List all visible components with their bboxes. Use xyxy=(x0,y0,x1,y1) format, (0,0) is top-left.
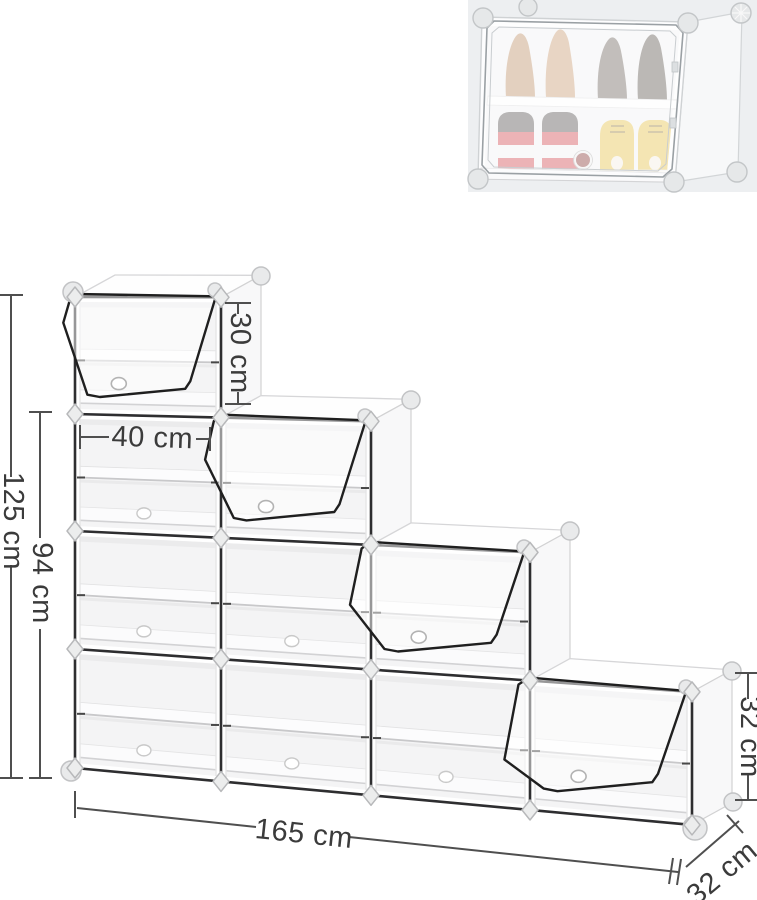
door-knob xyxy=(111,378,126,390)
knob-hole xyxy=(439,771,453,782)
knob-hole xyxy=(137,508,151,519)
knob-hole xyxy=(137,626,151,637)
corner-knob xyxy=(727,162,747,182)
corner-knob xyxy=(252,267,270,285)
knob-hole xyxy=(285,758,299,769)
corner-knob xyxy=(678,13,698,33)
cube-r4-c2 xyxy=(223,664,369,789)
inset-photo xyxy=(468,0,757,192)
door-knob xyxy=(571,770,586,782)
cube-r4-c1 xyxy=(77,654,219,776)
dimension-three-tier-height-label: 94 cm xyxy=(26,542,58,623)
door-hinge xyxy=(672,62,678,72)
open-door xyxy=(504,678,686,792)
door-hinge xyxy=(670,118,676,128)
knob-hole xyxy=(285,636,299,647)
cube-r4-c3 xyxy=(373,675,528,805)
diagram-canvas: 125 cm 94 cm 30 cm 40 cm 32 cm 165 cm 32… xyxy=(0,0,757,900)
dimension-right-cube-height: 32 cm xyxy=(734,673,757,800)
corner-knob xyxy=(473,8,493,28)
dimension-three-tier-height: 94 cm xyxy=(26,412,58,778)
corner-knob xyxy=(561,522,579,540)
corner-knob xyxy=(402,391,420,409)
dimension-total-width-label: 165 cm xyxy=(253,813,354,855)
knob-hole xyxy=(137,745,151,756)
frosted-door xyxy=(482,21,683,177)
cube-r3-c2 xyxy=(223,543,369,664)
door-knob xyxy=(411,631,426,643)
shoe-rack-figure xyxy=(61,267,742,840)
dimension-top-cube-height: 30 cm xyxy=(224,303,256,404)
corner-knob xyxy=(468,169,488,189)
cube-r3-c1 xyxy=(77,536,219,654)
corner-knob xyxy=(664,172,684,192)
corner-knob xyxy=(724,793,742,811)
dimension-total-height-label: 125 cm xyxy=(0,472,29,570)
dimension-cube-width-label: 40 cm xyxy=(111,421,194,456)
door-knob xyxy=(259,501,274,513)
dimension-right-cube-height-label: 32 cm xyxy=(734,696,757,777)
dimension-total-height: 125 cm xyxy=(0,295,29,778)
dimension-depth-label: 32 cm xyxy=(681,835,757,900)
dimension-top-cube-height-label: 30 cm xyxy=(224,312,256,393)
corner-knob xyxy=(519,0,537,16)
product-dimension-diagram: 125 cm 94 cm 30 cm 40 cm 32 cm 165 cm 32… xyxy=(0,0,757,900)
corner-knob xyxy=(723,662,741,680)
